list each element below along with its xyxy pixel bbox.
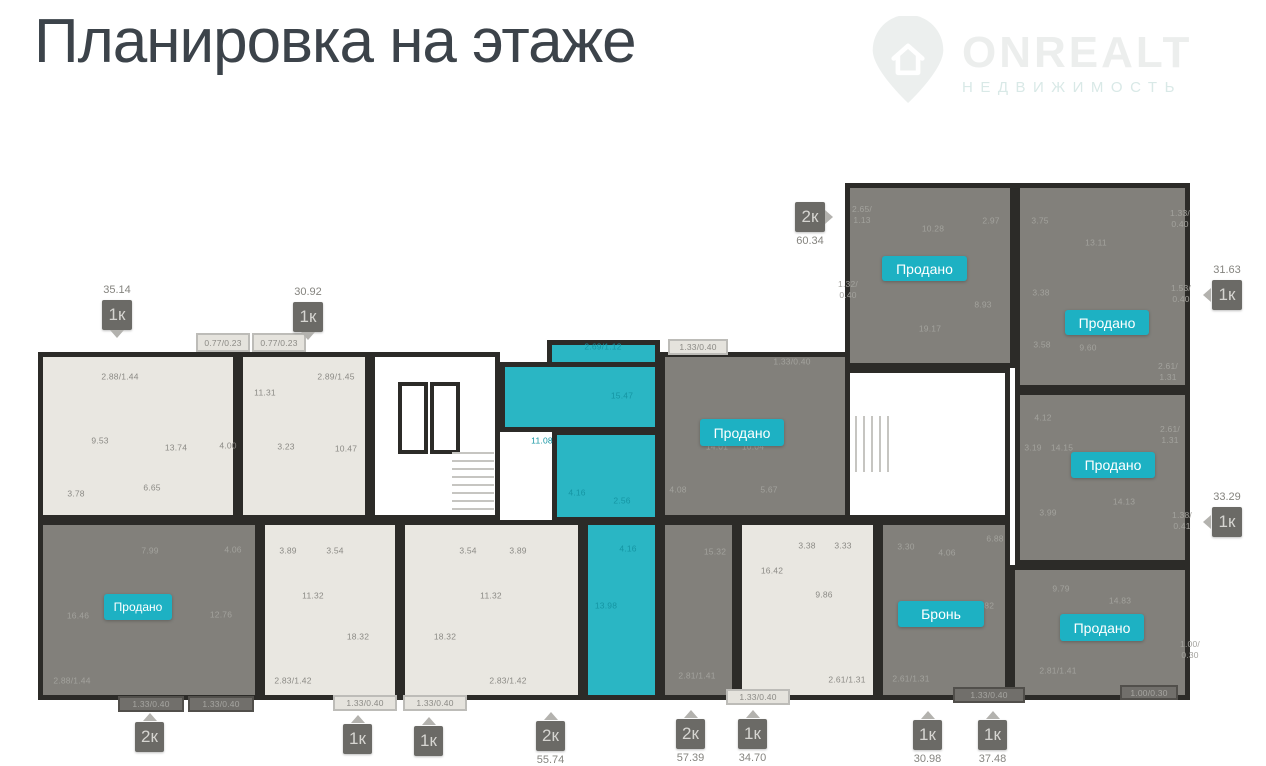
screenshot-root: { "header": { "title": "Планировка на эт…	[0, 0, 1266, 762]
unit-badge[interactable]: 2к	[135, 722, 164, 752]
room-area-label: 4.00	[219, 440, 236, 451]
room-area-label: 2.65/ 1.13	[852, 204, 872, 226]
room-area-label: 11.32	[480, 590, 502, 601]
room-area-label: 11.32	[302, 590, 324, 601]
room-area-label: 3.23	[277, 441, 294, 452]
room-area-label: 16.46	[67, 610, 89, 621]
room-area-label: 9.86	[815, 589, 832, 600]
unit-badge[interactable]: 2к	[795, 202, 825, 232]
unit-badge[interactable]: 1к	[913, 720, 942, 750]
apartment-1k-bottom-b[interactable]	[400, 520, 583, 700]
unit-badge-pointer-icon	[1203, 288, 1211, 302]
room-area-label: 4.08	[669, 484, 686, 495]
unit-area-label: 31.63	[1213, 264, 1241, 276]
balcony-area-label: 1.00/0.30	[1120, 685, 1178, 700]
room-area-label: 2.56	[613, 495, 630, 506]
room-area-label: 2.69/1.12	[584, 341, 621, 352]
unit-badge-pointer-icon	[986, 711, 1000, 719]
unit-area-label: 30.92	[294, 286, 322, 298]
room-area-label: 2.61/ 1.31	[1160, 424, 1180, 446]
balcony-area-label: 1.33/0.40	[403, 695, 467, 711]
room-area-label: 9.53	[91, 435, 108, 446]
unit-badge[interactable]: 1к	[1212, 507, 1242, 537]
status-badge-sold: Продано	[700, 419, 784, 446]
unit-area-label: 33.29	[1213, 491, 1241, 503]
room-area-label: 3.38	[1032, 287, 1049, 298]
room-area-label: 9.60	[1079, 342, 1096, 353]
status-badge-sold: Продано	[1071, 452, 1155, 478]
room-area-label: 2.81/1.41	[1039, 665, 1076, 676]
room-area-label: 5.67	[760, 484, 777, 495]
unit-badge-pointer-icon	[301, 332, 315, 340]
room-area-label: 12.76	[210, 609, 232, 620]
balcony-area-label: 0.77/0.23	[252, 333, 306, 352]
unit-badge-pointer-icon	[921, 711, 935, 719]
room-area-label: 4.12	[1034, 412, 1051, 423]
room-area-label: 13.74	[165, 442, 187, 453]
room-area-label: 14.15	[1051, 442, 1073, 453]
room-area-label: 13.11	[1085, 237, 1107, 248]
room-area-label: 2.88/1.44	[53, 675, 90, 686]
room-area-label: 7.99	[141, 545, 158, 556]
unit-area-label: 55.74	[537, 754, 565, 766]
balcony-area-label: 0.77/0.23	[196, 333, 250, 352]
room-area-label: 11.08	[531, 435, 553, 446]
room-area-label: 2.81/1.41	[678, 670, 715, 681]
room-area-label: 2.88/1.44	[101, 371, 138, 382]
room-area-label: 4.16	[568, 487, 585, 498]
room-area-label: 2.89/1.45	[317, 371, 354, 382]
unit-badge-pointer-icon	[746, 710, 760, 718]
unit-badge-pointer-icon	[544, 712, 558, 720]
unit-badge-pointer-icon	[143, 713, 157, 721]
room-area-label: 15.47	[611, 390, 633, 401]
unit-badge-pointer-icon	[110, 330, 124, 338]
floor-plan: 0.77/0.230.77/0.231.33/0.401.33/0.401.33…	[0, 0, 1266, 762]
room-area-label: 3.58	[1033, 339, 1050, 350]
unit-badge[interactable]: 1к	[102, 300, 132, 330]
room-area-label: 3.89	[279, 545, 296, 556]
balcony-area-label: 1.33/0.40	[726, 689, 790, 705]
room-area-label: 9.79	[1052, 583, 1069, 594]
status-badge-sold: Продано	[104, 594, 172, 620]
room-area-label: 6.65	[143, 482, 160, 493]
room-area-label: 4.16	[619, 543, 636, 554]
apartment-2k-55-74-upper[interactable]	[500, 362, 660, 432]
room-area-label: 4.06	[938, 547, 955, 558]
unit-area-label: 34.70	[739, 752, 767, 764]
status-badge-sold: Продано	[882, 256, 967, 281]
room-area-label: 1.38/ 0.41	[1172, 510, 1192, 532]
unit-badge[interactable]: 1к	[414, 726, 443, 756]
apartment-2k-55-74-mid[interactable]	[552, 430, 660, 522]
room-area-label: 3.54	[326, 545, 343, 556]
room-area-label: 6.88	[986, 533, 1003, 544]
unit-badge-pointer-icon	[422, 717, 436, 725]
room-area-label: 11.31	[254, 387, 276, 398]
room-area-label: 16.42	[761, 565, 783, 576]
unit-area-label: 60.34	[796, 235, 824, 247]
unit-area-label: 37.48	[979, 753, 1007, 765]
unit-badge[interactable]: 1к	[343, 724, 372, 754]
unit-badge[interactable]: 1к	[978, 720, 1007, 750]
room-area-label: 3.99	[1039, 507, 1056, 518]
room-area-label: 19.17	[919, 323, 941, 334]
status-badge-sold: Продано	[1060, 614, 1144, 641]
room-area-label: 3.89	[509, 545, 526, 556]
staircase-icon	[452, 452, 494, 512]
balcony-area-label: 1.33/0.40	[333, 695, 397, 711]
room-area-label: 3.38	[798, 540, 815, 551]
room-area-label: 18.32	[434, 631, 456, 642]
room-area-label: 8.93	[974, 299, 991, 310]
unit-badge-pointer-icon	[684, 710, 698, 718]
room-area-label: 1.33/ 0.40	[1170, 208, 1190, 230]
unit-badge-pointer-icon	[1203, 515, 1211, 529]
unit-badge[interactable]: 1к	[1212, 280, 1242, 310]
unit-area-label: 35.14	[103, 284, 131, 296]
room-area-label: 10.28	[922, 223, 944, 234]
status-badge-sold: Продано	[1065, 310, 1149, 335]
room-area-label: 2.61/1.31	[828, 674, 865, 685]
balcony-area-label: 1.33/0.40	[188, 696, 254, 712]
elevator-shaft-icon	[430, 382, 460, 454]
room-area-label: 14.83	[1109, 595, 1131, 606]
room-area-label: 1.53/ 0.40	[1171, 283, 1191, 305]
balcony-area-label: 1.33/0.40	[953, 687, 1025, 703]
room-area-label: 10.47	[335, 443, 357, 454]
room-area-label: 4.06	[224, 544, 241, 555]
balcony-area-label: 1.33/0.40	[668, 339, 728, 355]
room-area-label: 3.78	[67, 488, 84, 499]
room-area-label: 15.32	[704, 546, 726, 557]
room-area-label: 2.83/1.42	[489, 675, 526, 686]
unit-badge[interactable]: 1к	[293, 302, 323, 332]
unit-badge[interactable]: 2к	[676, 719, 705, 749]
unit-badge[interactable]: 1к	[738, 719, 767, 749]
room-area-label: 3.19	[1024, 442, 1041, 453]
room-area-label: 3.75	[1031, 215, 1048, 226]
room-area-label: 2.61/ 1.31	[1158, 361, 1178, 383]
room-area-label: 3.30	[897, 541, 914, 552]
room-area-label: 14.13	[1113, 496, 1135, 507]
room-area-label: 2.61/1.31	[892, 673, 929, 684]
room-area-label: 2.83/1.42	[274, 675, 311, 686]
staircase-icon	[855, 416, 893, 472]
room-area-label: 1.33/0.40	[773, 356, 810, 367]
room-area-label: 1.00/ 0.30	[1180, 639, 1200, 661]
elevator-shaft-icon	[398, 382, 428, 454]
room-area-label: 18.32	[347, 631, 369, 642]
room-area-label: 1.32/ 0.40	[838, 279, 858, 301]
unit-badge[interactable]: 2к	[536, 721, 565, 751]
balcony-area-label: 1.33/0.40	[118, 696, 184, 712]
unit-area-label: 30.98	[914, 753, 942, 765]
room-area-label: 13.98	[595, 600, 617, 611]
unit-badge-pointer-icon	[351, 715, 365, 723]
status-badge-reserved: Бронь	[898, 601, 984, 627]
unit-badge-pointer-icon	[825, 210, 833, 224]
room-area-label: 3.54	[459, 545, 476, 556]
unit-area-label: 57.39	[677, 752, 705, 764]
room-area-label: 3.33	[834, 540, 851, 551]
room-area-label: 2.97	[982, 215, 999, 226]
